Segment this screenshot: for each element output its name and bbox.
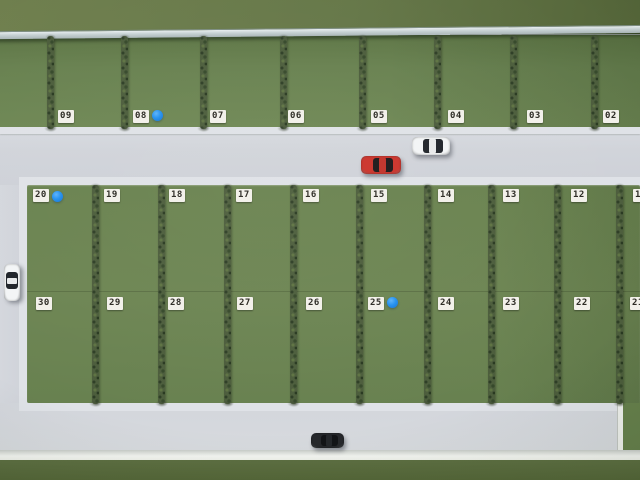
plot-label-18[interactable]: 18 [169, 189, 185, 202]
plot-label-05[interactable]: 05 [371, 110, 387, 123]
car-white-main-road[interactable] [412, 137, 450, 155]
hedge-divider [591, 36, 598, 129]
corner-grass-southeast [623, 395, 640, 451]
plot-label-21[interactable]: 21 [630, 297, 640, 310]
hedge-divider [200, 36, 207, 129]
car-white-west-road[interactable] [4, 264, 20, 301]
plot-label-03[interactable]: 03 [527, 110, 543, 123]
plot-label-11[interactable]: 11 [633, 189, 640, 202]
plot-label-20[interactable]: 20 [33, 189, 49, 202]
curb-east-end [617, 403, 623, 451]
hedge-divider [47, 36, 54, 129]
sidewalk-block-left [19, 177, 27, 411]
hedge-divider [290, 185, 297, 404]
plot-label-17[interactable]: 17 [236, 189, 252, 202]
car-roof [379, 158, 386, 171]
hedge-divider [280, 36, 287, 129]
plot-label-26[interactable]: 26 [306, 297, 322, 310]
plot-label-22[interactable]: 22 [574, 297, 590, 310]
plot-label-12[interactable]: 12 [571, 189, 587, 202]
blue-marker-plot-20 [52, 191, 63, 202]
plot-label-15[interactable]: 15 [371, 189, 387, 202]
plot-label-14[interactable]: 14 [438, 189, 454, 202]
plot-label-28[interactable]: 28 [168, 297, 184, 310]
car-roof [7, 278, 18, 283]
sidewalk-block-top [19, 177, 640, 185]
plot-label-24[interactable]: 24 [438, 297, 454, 310]
plot-label-23[interactable]: 23 [503, 297, 519, 310]
hedge-divider [359, 36, 366, 129]
hedge-divider [121, 36, 128, 129]
plot-label-25[interactable]: 25 [368, 297, 384, 310]
blue-marker-plot-25 [387, 297, 398, 308]
plot-label-19[interactable]: 19 [104, 189, 120, 202]
hedge-divider [224, 185, 231, 404]
hedge-divider [434, 36, 441, 129]
sidewalk-block-bottom [19, 403, 617, 411]
plot-label-04[interactable]: 04 [448, 110, 464, 123]
curb-stripe-south [0, 450, 640, 460]
outer-grass-bottom [0, 459, 640, 480]
hedge-divider [616, 185, 623, 404]
plot-label-09[interactable]: 09 [58, 110, 74, 123]
plot-label-06[interactable]: 06 [288, 110, 304, 123]
field-block-main [27, 185, 640, 403]
plot-label-08[interactable]: 08 [133, 110, 149, 123]
plot-label-30[interactable]: 30 [36, 297, 52, 310]
plot-label-02[interactable]: 02 [603, 110, 619, 123]
car-dark-south-road[interactable] [311, 433, 344, 448]
plot-label-16[interactable]: 16 [303, 189, 319, 202]
plot-label-13[interactable]: 13 [503, 189, 519, 202]
hedge-divider [510, 36, 517, 129]
hedge-divider [356, 185, 363, 404]
hedge-divider [158, 185, 165, 404]
hedge-divider [554, 185, 561, 404]
hedge-divider [488, 185, 495, 404]
blue-marker-plot-08 [152, 110, 163, 121]
sidewalk-north [0, 127, 640, 134]
hedge-divider [424, 185, 431, 404]
plot-label-27[interactable]: 27 [237, 297, 253, 310]
car-roof [429, 139, 435, 152]
car-roof [326, 435, 332, 446]
car-red-main-road[interactable] [361, 156, 401, 174]
hedge-divider [92, 185, 99, 404]
plot-label-29[interactable]: 29 [107, 297, 123, 310]
plot-label-07[interactable]: 07 [210, 110, 226, 123]
plot-map-scene: 0908070605040302201918171615141312113029… [0, 0, 640, 480]
field-strip-north [0, 35, 640, 127]
